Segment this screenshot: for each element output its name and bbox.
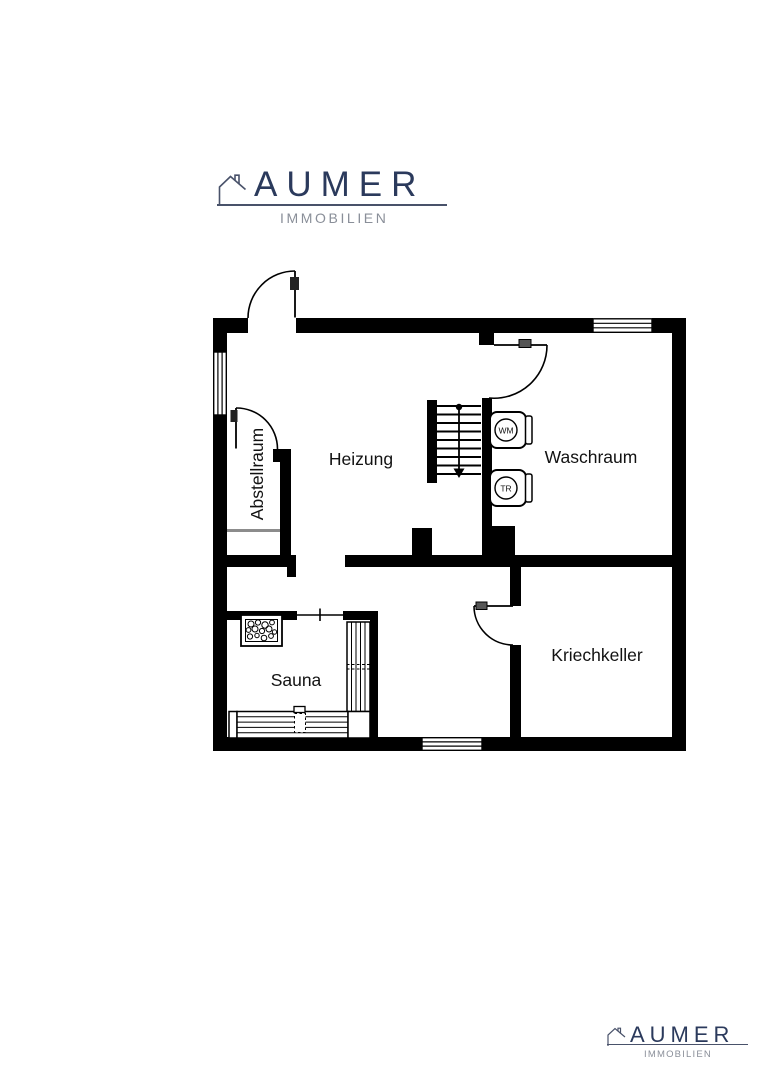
dryer-icon: TR [490, 470, 532, 506]
wall-left-lower-segment [213, 415, 227, 751]
waschraum-door [489, 340, 547, 399]
sauna-bench-right [347, 622, 370, 712]
window-bottom [422, 738, 482, 751]
entrance-door [248, 271, 299, 318]
sauna-bench-bottom [229, 707, 370, 739]
washing-machine-icon: WM [490, 412, 532, 448]
sauna-heater-icon [241, 615, 282, 646]
room-label-sauna: Sauna [271, 670, 322, 690]
wall-kriechkeller-lower [510, 645, 521, 737]
wall-stair-left [427, 400, 437, 483]
floorplan-page: AUMER IMMOBILIEN [0, 0, 764, 1080]
wall-right [672, 318, 686, 751]
staircase [437, 404, 481, 478]
room-label-abstellraum: Abstellraum [247, 428, 267, 520]
sauna-glass-door [297, 609, 343, 622]
kriechkeller-door [474, 602, 513, 645]
brand-subtitle-small: IMMOBILIEN [644, 1049, 712, 1060]
wall-bottom-left-segment [213, 737, 422, 751]
brand-underline-small [607, 1044, 748, 1045]
dryer-label: TR [500, 484, 511, 494]
room-label-heizung: Heizung [329, 449, 393, 469]
wall-bottom-right-segment [482, 737, 686, 751]
wall-chimney-stub [412, 528, 432, 556]
wall-sauna-right [370, 611, 378, 738]
wall-abstellraum-right [280, 449, 291, 557]
room-label-kriechkeller: Kriechkeller [551, 645, 643, 665]
window-top [593, 319, 652, 333]
wall-stub-abstellraum-corner [287, 555, 296, 577]
wall-kriechkeller-upper [510, 562, 521, 606]
window-left [214, 352, 227, 415]
wall-left-upper-segment [213, 318, 227, 352]
washing-machine-label: WM [498, 426, 513, 436]
wall-stub-waschraum-door [479, 333, 494, 345]
wall-top-middle-segment [296, 318, 593, 333]
floor-plan: WM TR [0, 0, 764, 1080]
room-label-waschraum: Waschraum [545, 447, 638, 467]
